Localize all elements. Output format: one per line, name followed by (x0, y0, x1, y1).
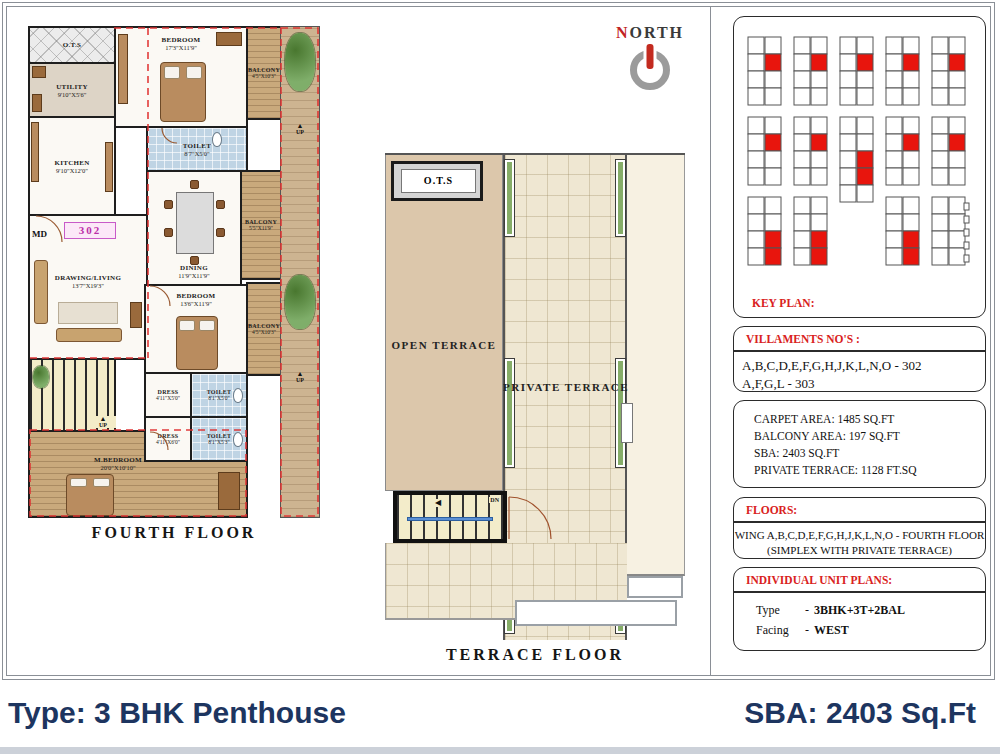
room-bedroom2-label: BEDROOM 13'6"X11'9" (146, 292, 246, 307)
study-table (216, 32, 242, 46)
key-plan-box: KEY PLAN: (733, 16, 986, 318)
chair (216, 228, 225, 237)
room-toilet-2: TOILET 8'1"X5'0" (190, 372, 248, 418)
villaments-header: VILLAMENTS NO'S : (746, 333, 973, 345)
floors-line-2: (SIMPLEX WITH PRIVATE TERRACE) (734, 543, 985, 558)
terrace-stairs: ◀ DN (393, 491, 507, 543)
floors-box: FLOORS: WING A,B,C,D,E,F,G,H,J,K,L,N,O -… (733, 497, 986, 559)
up-label-2: ▲ UP (287, 371, 313, 383)
bottom-edge-strip (0, 747, 1000, 754)
villaments-line-2: A,F,G,L - 303 (742, 375, 922, 393)
room-dress1-label: DRESS 4'11"X5'0" (146, 389, 190, 401)
fourth-floor-caption: FOURTH FLOOR (28, 524, 320, 542)
areas-box: CARPET AREA: 1485 SQ.FT BALCONY AREA: 19… (733, 400, 986, 488)
room-kitchen-label: KITCHEN 9'10"X12'0" (30, 159, 114, 174)
bed-2 (176, 316, 218, 370)
unit-plans-box: INDIVIDUAL UNIT PLANS: Type-3BHK+3T+2BAL… (733, 567, 986, 651)
terrace-right-strip (627, 153, 685, 576)
divider (734, 591, 985, 593)
private-terrace-label: PRIVATE TERRACE (503, 381, 627, 393)
carpet-area-line: CARPET AREA: 1485 SQ.FT (754, 411, 917, 428)
room-bedroom-2: BEDROOM 13'6"X11'9" (144, 284, 248, 374)
north-label: NORTH (598, 24, 702, 42)
room-balcony-1: BALCONY 4'5"X10'3" (246, 26, 282, 120)
kitchen-counter-2 (105, 142, 113, 192)
room-dining-label: DINING 11'9"X11'9" (148, 264, 240, 279)
washer-icon (32, 94, 42, 112)
floors-header: FLOORS: (746, 504, 973, 516)
terrace-ots-label: O.T.S (401, 169, 476, 193)
room-ots-label: O.T.S (30, 41, 114, 49)
room-bedroom-1: BEDROOM 17'3"X11'9" (114, 26, 248, 128)
terrace-ots-box: O.T.S (391, 161, 483, 201)
bed-1 (160, 62, 206, 122)
villaments-line-1: A,B,C,D,E,F,G,H,J,K,L,N,O - 302 (742, 357, 922, 375)
unit-facing-row: Facing-WEST (756, 620, 905, 640)
planter-icon (504, 159, 515, 237)
kitchen-counter (31, 122, 39, 182)
north-indicator: NORTH (598, 24, 702, 90)
dn-arrow-icon: ◀ (435, 499, 441, 507)
private-terrace-line: PRIVATE TERRACE: 1128 FT.SQ (754, 462, 917, 479)
sba-line: SBA: 2403 SQ.FT (754, 445, 917, 462)
key-plan-diagram (734, 23, 984, 273)
type-title: Type: 3 BHK Penthouse (8, 696, 346, 730)
room-balcony1-label: BALCONY 4'5"X10'3" (248, 67, 280, 79)
chair (164, 228, 173, 237)
sofa-2 (56, 328, 122, 342)
tv-unit (130, 302, 142, 328)
chair (190, 256, 199, 265)
rug (58, 302, 118, 324)
desk (218, 472, 240, 510)
terrace-top-wall (385, 153, 685, 155)
toilet-fixture (212, 132, 222, 147)
plant-icon (285, 33, 315, 91)
chair (164, 200, 173, 209)
stairs-up-label: ▲ UP (90, 416, 116, 428)
unit-number-badge: 302 (64, 222, 116, 239)
key-plan-label: KEY PLAN: (752, 297, 815, 309)
open-terrace-area (385, 153, 503, 491)
room-toilet-1: TOILET 8'7"X5'0" (146, 126, 248, 172)
balcony-area-line: BALCONY AREA: 197 SQ.FT (754, 428, 917, 445)
toilet-fixture (233, 388, 243, 403)
dishwasher-icon (32, 66, 46, 78)
planter-icon (615, 159, 626, 237)
dining-table (176, 192, 214, 254)
sofa (34, 260, 48, 324)
plant-icon (285, 275, 315, 329)
room-kitchen: KITCHEN 9'10"X12'0" (28, 116, 116, 216)
north-compass-icon (630, 50, 670, 90)
unit-plans-header: INDIVIDUAL UNIT PLANS: (746, 574, 973, 586)
plant-icon (33, 366, 49, 388)
side-terrace-strip: ▲ UP ▲ UP (280, 26, 320, 518)
divider (734, 521, 985, 523)
main-door-label: MD (32, 229, 47, 239)
window-marker (621, 403, 633, 443)
panel-divider (710, 6, 711, 676)
wardrobe (118, 34, 128, 104)
room-balcony-3: BALCONY 4'5"X10'3" (246, 282, 282, 376)
villaments-box: VILLAMENTS NO'S : A,B,C,D,E,F,G,H,J,K,L,… (733, 326, 986, 392)
planter-icon (504, 358, 515, 468)
room-toilet-3: TOILET 8'1"X5'3" (190, 416, 248, 462)
room-toilet1-label: TOILET 8'7"X5'0" (148, 142, 246, 157)
sba-title: SBA: 2403 Sq.Ft (744, 696, 976, 730)
room-balcony-2: BALCONY 5'5"X11'9" (240, 170, 282, 280)
chair (190, 180, 199, 189)
chair (216, 200, 225, 209)
terrace-step-outline (515, 600, 677, 626)
room-balcony3-label: BALCONY 4'5"X10'3" (248, 323, 280, 335)
room-stairs: ▲ UP (28, 358, 116, 432)
floors-line-1: WING A,B,C,D,E,F,G,H,J,K,L,N,O - FOURTH … (734, 528, 985, 543)
up-label-1: ▲ UP (287, 123, 313, 135)
room-dress-1: DRESS 4'11"X5'0" (144, 372, 192, 418)
toilet-fixture (233, 432, 243, 447)
stairs-dn-label: DN (489, 497, 500, 503)
divider (734, 350, 985, 352)
room-dining: DINING 11'9"X11'9" (146, 170, 242, 286)
terrace-step-outline (627, 576, 683, 598)
room-dress2-label: DRESS 4'11"X6'0" (146, 433, 190, 445)
terrace-floor-caption: TERRACE FLOOR (385, 646, 685, 664)
master-bed (66, 474, 114, 516)
terrace-floor-plan: O.T.S OPEN TERRACE PRIVATE TERRACE ◀ DN (385, 153, 685, 640)
room-utility: UTILITY 9'10"X5'6" (28, 62, 116, 118)
stair-rail (407, 517, 493, 521)
room-dress-2: DRESS 4'11"X6'0" (144, 416, 192, 462)
room-ots: O.T.S (28, 26, 116, 64)
fourth-floor-plan: O.T.S UTILITY 9'10"X5'6" KITCHEN 9'10"X1… (28, 26, 320, 518)
brochure-page: O.T.S UTILITY 9'10"X5'6" KITCHEN 9'10"X1… (0, 0, 1000, 754)
room-utility-label: UTILITY 9'10"X5'6" (30, 83, 114, 98)
unit-type-row: Type-3BHK+3T+2BAL (756, 600, 905, 620)
open-terrace-label: OPEN TERRACE (385, 339, 503, 351)
room-balcony2-label: BALCONY 5'5"X11'9" (242, 219, 280, 231)
